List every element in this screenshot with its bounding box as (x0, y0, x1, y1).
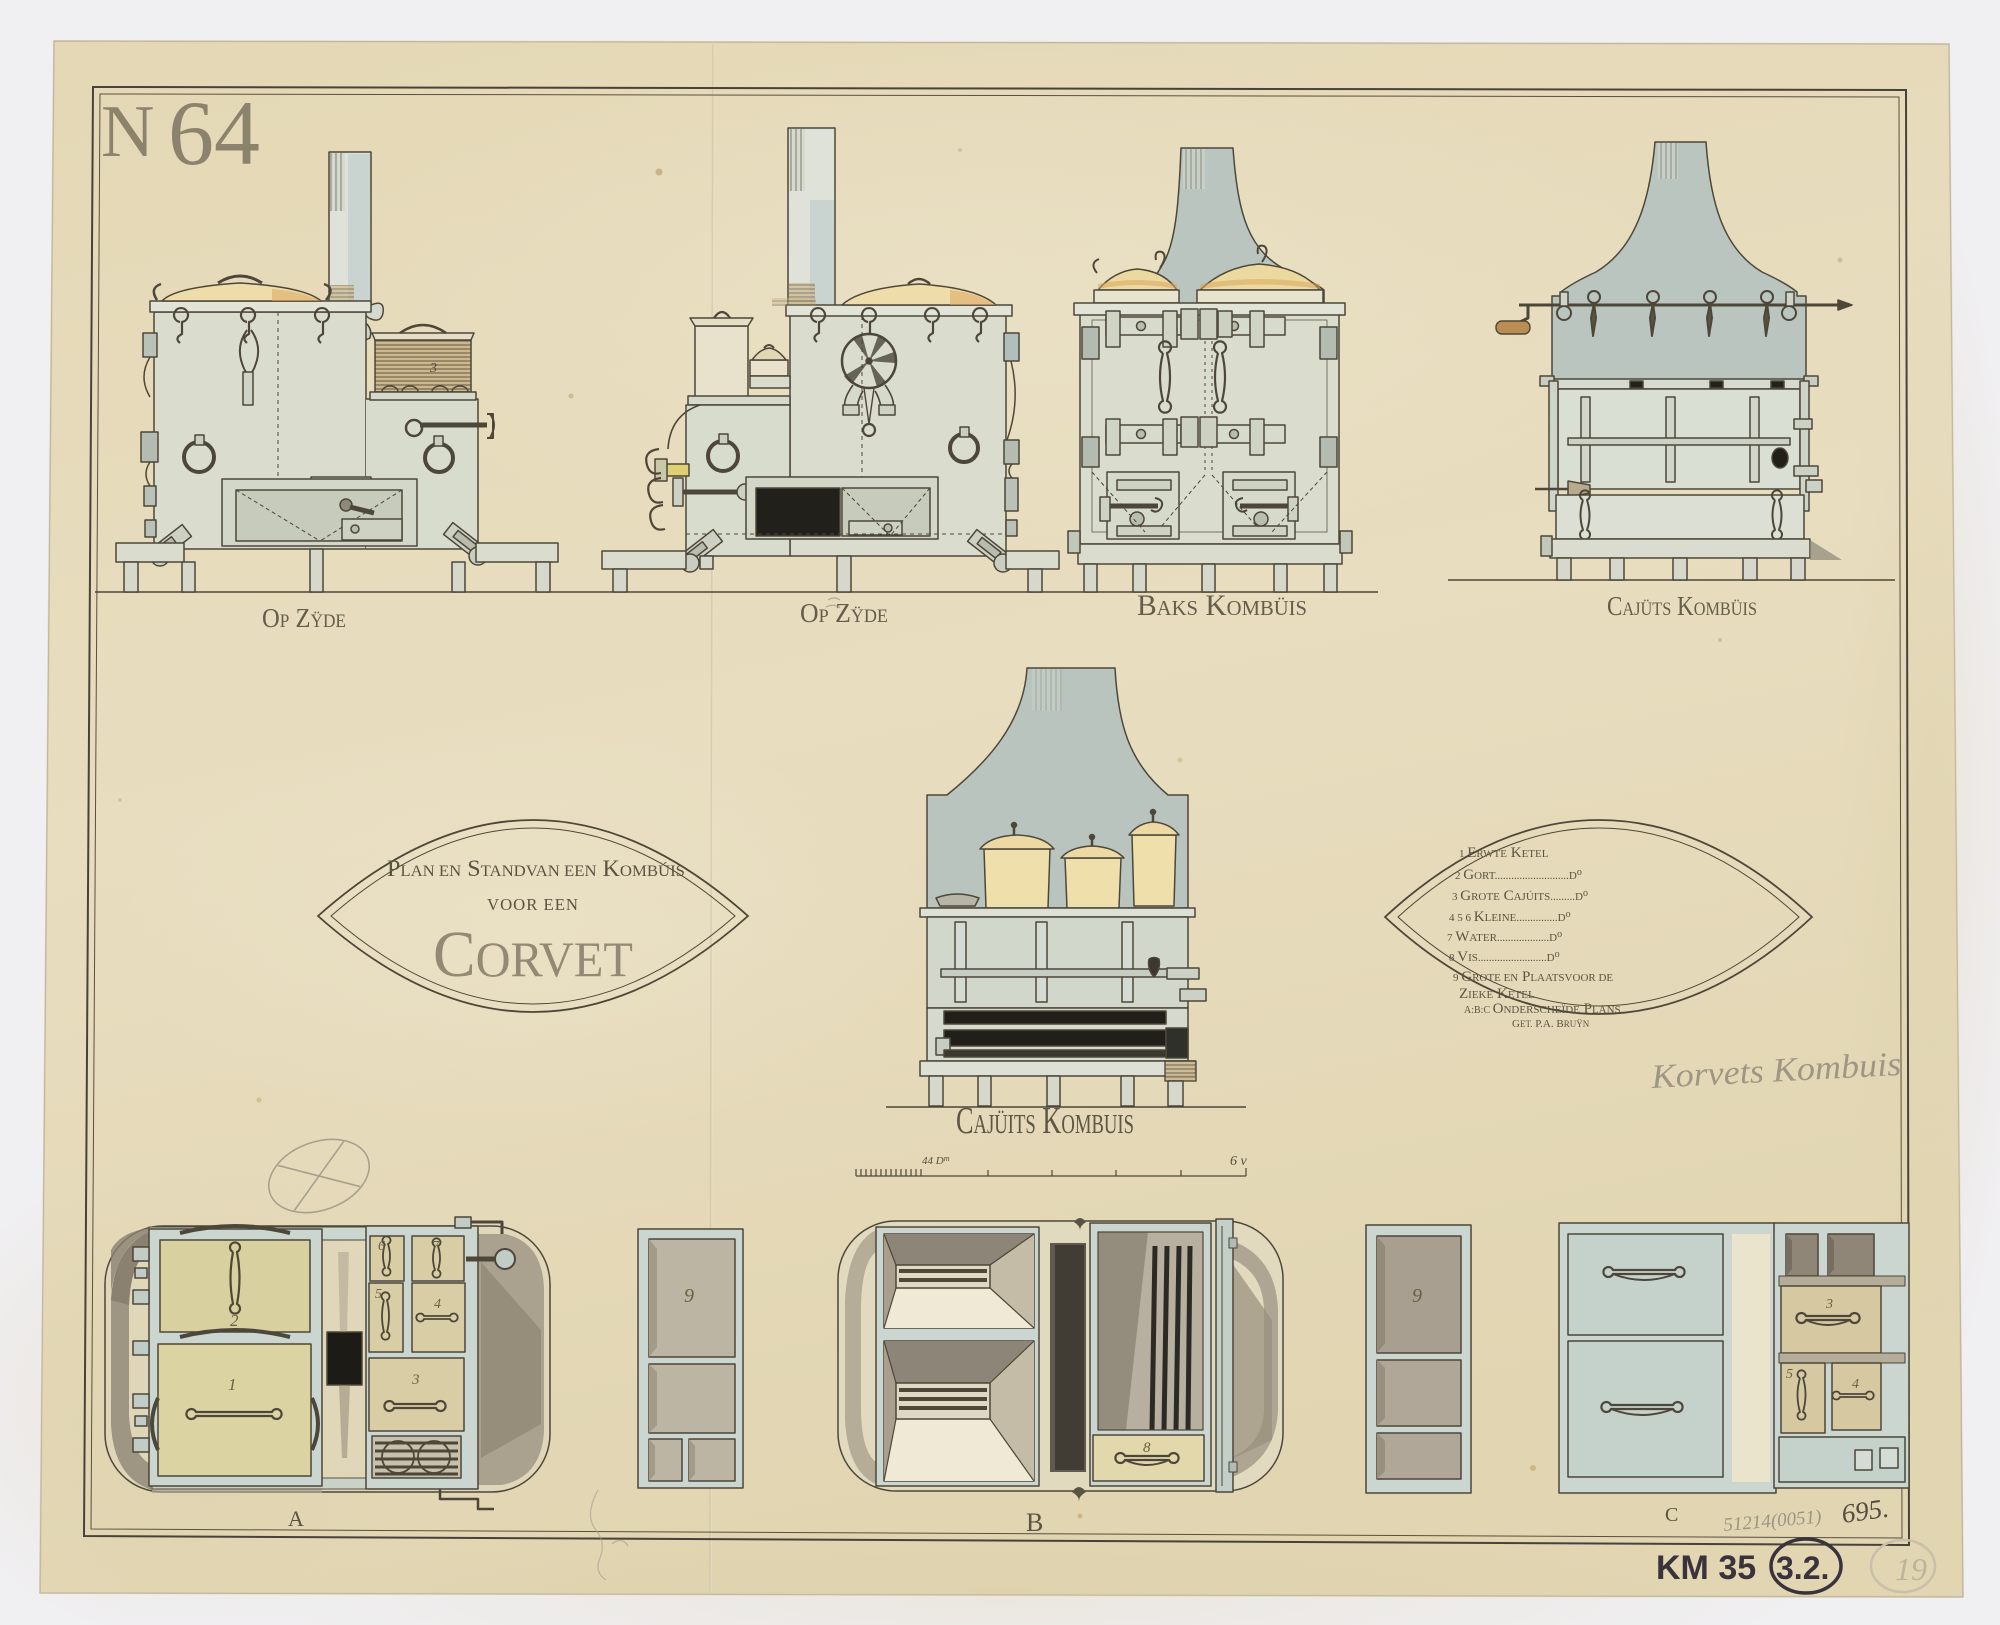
svg-text:8: 8 (1143, 1440, 1151, 1456)
svg-text:4: 4 (1852, 1377, 1859, 1392)
svg-text:64: 64 (168, 82, 260, 184)
svg-text:VOOR EEN: VOOR EEN (487, 895, 579, 914)
svg-text:N: N (101, 91, 154, 173)
svg-text:ZIEKE KETEL: ZIEKE KETEL (1459, 986, 1535, 1002)
svg-text:19: 19 (1895, 1551, 1927, 1587)
svg-text:3: 3 (411, 1372, 420, 1388)
svg-text:6 v: 6 v (1230, 1154, 1248, 1169)
svg-text:9 GROTE EN PLAATSVOOR DE: 9 GROTE EN PLAATSVOOR DE (1453, 969, 1613, 985)
svg-text:3.2.: 3.2. (1776, 1550, 1829, 1586)
svg-text:8 VIS.........................: 8 VIS.........................Do (1449, 949, 1560, 965)
svg-text:1 ERWTE KETEL: 1 ERWTE KETEL (1459, 845, 1549, 861)
svg-text:A: A (288, 1506, 304, 1531)
svg-text:GET. P.A. BRUŸN: GET. P.A. BRUŸN (1512, 1018, 1590, 1030)
svg-text:6: 6 (378, 1239, 385, 1254)
svg-text:KM 35: KM 35 (1656, 1549, 1756, 1587)
svg-text:3: 3 (429, 361, 437, 376)
svg-text:B: B (1026, 1508, 1043, 1537)
svg-text:5: 5 (1786, 1367, 1793, 1382)
svg-text:4: 4 (434, 1297, 441, 1312)
svg-text:9: 9 (1412, 1285, 1422, 1307)
svg-text:2 GORT........................: 2 GORT...........................Do (1455, 867, 1582, 883)
svg-text:9: 9 (684, 1285, 694, 1307)
svg-text:2: 2 (230, 1311, 239, 1330)
svg-text:5: 5 (375, 1287, 382, 1302)
svg-text:7 WATER...................Do: 7 WATER...................Do (1447, 929, 1562, 945)
svg-text:1: 1 (228, 1375, 237, 1394)
svg-text:3 GROTE CAJÚITS.........Do: 3 GROTE CAJÚITS.........Do (1452, 888, 1588, 904)
svg-text:3: 3 (1825, 1297, 1833, 1312)
svg-text:C: C (1665, 1504, 1678, 1526)
svg-text:7: 7 (432, 1239, 440, 1254)
svg-text:4 5 6 KLEINE...............Do: 4 5 6 KLEINE...............Do (1449, 909, 1571, 925)
